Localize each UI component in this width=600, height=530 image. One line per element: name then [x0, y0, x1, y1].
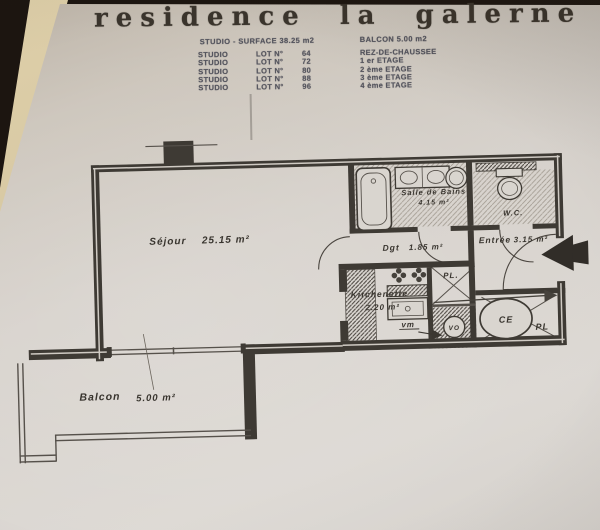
balcony-leader-line — [143, 334, 153, 390]
bay-end-cap — [107, 347, 112, 357]
floor-plan-drawing: Séjour 25.15 m² Salle de Bains 4.15 m² W… — [0, 130, 600, 530]
balcony-label: Balcon — [79, 391, 120, 404]
balcony-spec: BALCON 5.00 m2 — [360, 34, 427, 44]
balcony-and-bay — [17, 343, 252, 463]
sejour-label: Séjour — [149, 236, 187, 248]
kitchenette-label: Kitchenette — [351, 288, 409, 299]
degagement-kitchen-wall — [339, 260, 475, 270]
balcony-rail-left — [22, 363, 26, 463]
round-basin-icon — [446, 167, 468, 189]
surface-spec: STUDIO - SURFACE 38.25 m2 — [200, 36, 315, 47]
floor-plan-photo: residence la galerne STUDIO - SURFACE 38… — [0, 0, 600, 530]
placard-right-label: PL — [535, 321, 549, 331]
lot-number: 96 — [302, 82, 360, 91]
sliding-door-line — [109, 351, 243, 356]
placard-top-label: PL. — [443, 271, 459, 280]
kitchen-stub-top — [339, 270, 348, 292]
kitchenette-area: 2.20 m² — [364, 302, 400, 312]
bathtub-icon — [356, 168, 392, 231]
burners-icon — [391, 267, 426, 283]
specification-block: STUDIO - SURFACE 38.25 m2 BALCON 5.00 m2… — [0, 0, 600, 113]
vm-label: vm — [401, 320, 415, 329]
wc-label: W.C. — [503, 208, 523, 218]
balcony-rail-left — [17, 363, 21, 463]
entree-area: 3.15 m² — [514, 234, 549, 244]
unit-type: STUDIO — [198, 84, 256, 93]
lot-label: LOT N° — [256, 83, 302, 92]
entree-label: Entrée — [479, 234, 512, 245]
lot-table: STUDIO LOT N° 64 REZ-DE-CHAUSSEE STUDIO … — [198, 47, 501, 93]
balcony-rail-front — [55, 435, 251, 442]
water-heater-label: CE — [499, 314, 514, 324]
plan-geometry: Séjour 25.15 m² Salle de Bains 4.15 m² W… — [11, 130, 593, 463]
floor-label: 4 ème ETAGE — [360, 80, 500, 90]
balcony-side-wall — [243, 353, 257, 439]
sliding-door-line — [109, 346, 243, 351]
facade-pier — [163, 141, 194, 168]
sejour-area: 25.15 m² — [201, 234, 250, 246]
balcony-rail-front — [55, 429, 251, 436]
balcony-rail-step — [55, 435, 57, 461]
double-washbasin-icon — [395, 166, 450, 188]
toilet-icon — [496, 168, 523, 200]
bay-end-cap — [241, 343, 246, 353]
sliding-door-tick — [173, 347, 175, 354]
degagement-area: 1.85 m² — [409, 242, 444, 252]
vide-ordures-label: VO — [448, 325, 460, 332]
bathroom-south-wall-c — [533, 223, 561, 229]
bathroom-area: 4.15 m² — [417, 199, 449, 207]
placard-vo-divider — [433, 303, 476, 307]
bathroom-label: Salle de Bains — [401, 187, 466, 198]
degagement-label: Dgt — [382, 242, 400, 252]
balcony-area: 5.00 m² — [136, 392, 176, 404]
kitchen-stub-bottom — [340, 321, 349, 341]
